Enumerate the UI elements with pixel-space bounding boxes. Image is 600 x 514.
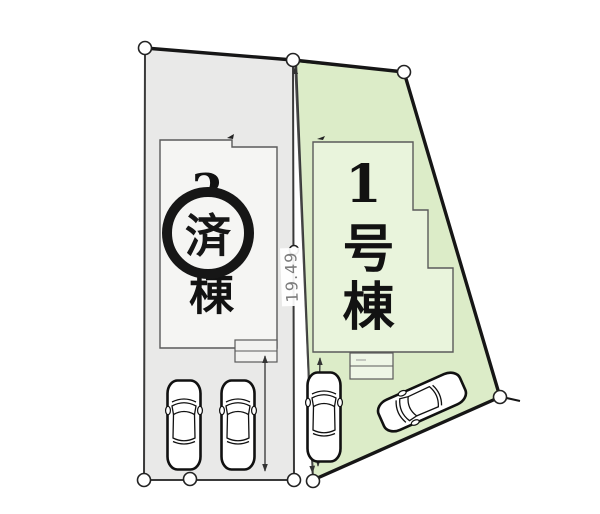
- survey-marker-icon: [288, 474, 301, 487]
- dimension-label: 19.49: [280, 248, 304, 307]
- car-icon: [166, 381, 203, 470]
- site-plan: 2号棟 済 1号棟 19.49: [0, 0, 600, 514]
- building-1-label: 1号棟: [337, 154, 389, 337]
- survey-marker-icon: [138, 474, 151, 487]
- car-icon: [306, 373, 343, 462]
- survey-marker-icon: [139, 42, 152, 55]
- survey-marker-icon: [287, 54, 300, 67]
- car-icon: [220, 381, 257, 470]
- sold-stamp: 済: [162, 187, 254, 279]
- survey-marker-icon: [307, 475, 320, 488]
- survey-marker-icon: [494, 391, 507, 404]
- survey-marker-icon: [184, 473, 197, 486]
- survey-marker-icon: [398, 66, 411, 79]
- sold-stamp-text: 済: [185, 200, 231, 266]
